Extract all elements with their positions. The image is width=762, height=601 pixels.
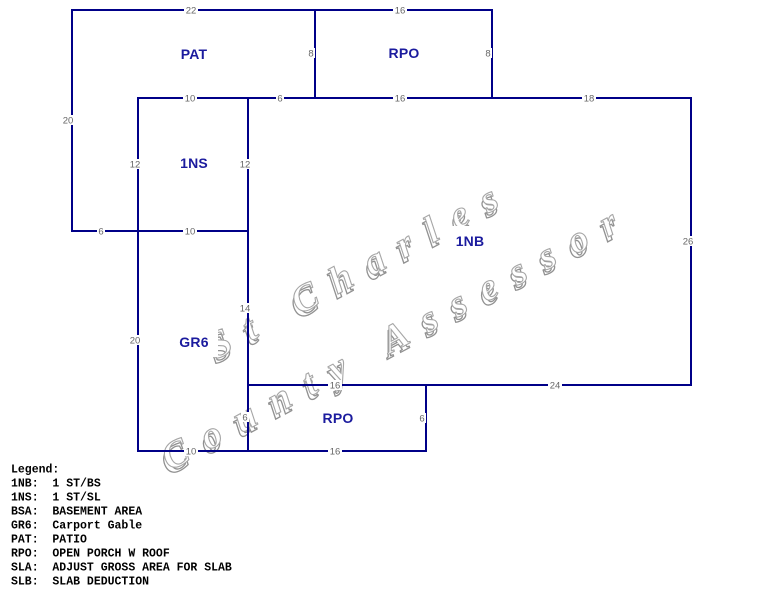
svg-text:6: 6: [277, 94, 282, 105]
svg-text:10: 10: [186, 447, 197, 458]
svg-text:PAT: PATIO: PAT: PATIO: [11, 534, 87, 547]
svg-text:1NS: 1 ST/SL: 1NS: 1 ST/SL: [11, 492, 101, 505]
svg-text:12: 12: [130, 160, 141, 171]
svg-text:RPO: RPO: [323, 410, 354, 426]
svg-text:20: 20: [63, 116, 74, 127]
svg-text:SLA: ADJUST GROSS AREA FOR SL: SLA: ADJUST GROSS AREA FOR SLAB: [11, 562, 232, 575]
svg-text:16: 16: [395, 94, 406, 105]
svg-text:8: 8: [308, 49, 313, 60]
svg-text:14: 14: [240, 304, 251, 315]
svg-text:6: 6: [242, 413, 247, 424]
svg-text:12: 12: [240, 160, 251, 171]
svg-text:26: 26: [683, 237, 694, 248]
svg-text:Legend:: Legend:: [11, 464, 59, 477]
svg-text:6: 6: [419, 414, 424, 425]
svg-text:BSA: BASEMENT AREA: BSA: BASEMENT AREA: [11, 506, 142, 519]
svg-text:22: 22: [186, 6, 197, 17]
svg-text:1NB: 1NB: [456, 233, 485, 249]
svg-text:8: 8: [485, 49, 490, 60]
svg-text:RPO: RPO: [389, 45, 420, 61]
svg-text:PAT: PAT: [181, 46, 208, 62]
svg-text:24: 24: [550, 381, 561, 392]
svg-text:6: 6: [98, 227, 103, 238]
svg-text:18: 18: [584, 94, 595, 105]
svg-text:SLB: SLAB DEDUCTION: SLB: SLAB DEDUCTION: [11, 576, 149, 589]
svg-text:20: 20: [130, 336, 141, 347]
svg-text:10: 10: [185, 94, 196, 105]
svg-text:GR6: Carport Gable: GR6: Carport Gable: [11, 520, 142, 533]
svg-text:1NS: 1NS: [180, 155, 208, 171]
svg-text:10: 10: [185, 227, 196, 238]
svg-text:RPO: OPEN PORCH W ROOF: RPO: OPEN PORCH W ROOF: [11, 548, 170, 561]
svg-text:16: 16: [330, 447, 341, 458]
svg-text:GR6: GR6: [179, 334, 208, 350]
svg-text:16: 16: [330, 381, 341, 392]
svg-text:16: 16: [395, 6, 406, 17]
svg-text:1NB: 1 ST/BS: 1NB: 1 ST/BS: [11, 478, 101, 491]
